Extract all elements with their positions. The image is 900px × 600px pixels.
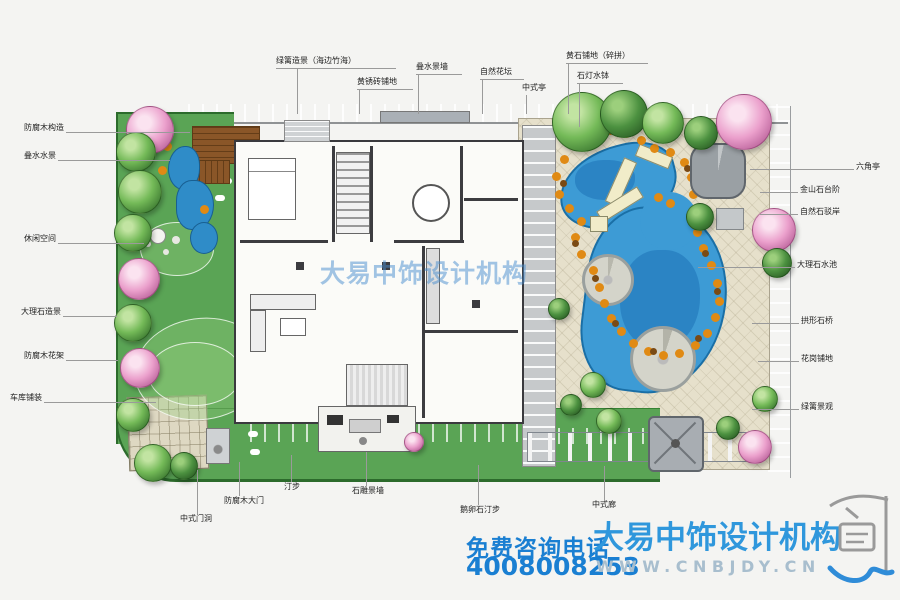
label-top-1: 黄锈砖铺地	[357, 77, 397, 87]
dayi-seal-logo	[824, 486, 898, 594]
leader-line	[752, 323, 799, 324]
label-right-6: 绿篱景观	[801, 402, 833, 412]
leader-line	[239, 462, 240, 496]
tree	[114, 304, 152, 342]
leader-line	[577, 83, 623, 84]
leader-line	[566, 63, 648, 64]
label-right-4: 拱形石桥	[801, 316, 833, 326]
label-left-4: 防腐木花架	[24, 351, 64, 361]
leader-line	[66, 360, 118, 361]
label-left-1: 叠水水景	[24, 151, 56, 161]
entry-steps	[284, 120, 330, 142]
footer-brand-name: 大易中饰设计机构	[593, 512, 841, 557]
hexagonal-pavilion	[690, 143, 746, 199]
leader-line	[480, 79, 524, 80]
label-top-3: 自然花坛	[480, 67, 512, 77]
bush	[686, 203, 714, 231]
rug	[346, 364, 408, 406]
coffee-table	[280, 318, 306, 336]
right-road	[768, 106, 791, 478]
bed	[248, 158, 296, 220]
leader-line	[66, 132, 190, 133]
sofa	[250, 310, 266, 352]
tree	[118, 170, 162, 214]
leader-line	[750, 169, 854, 170]
leader-line	[416, 74, 462, 75]
bush	[548, 298, 570, 320]
label-bottom-5: 中式廊	[592, 500, 616, 510]
garden-gate	[206, 428, 230, 464]
leader-line	[579, 83, 580, 127]
bridge-platform	[590, 216, 608, 232]
circular-patio	[582, 254, 634, 306]
label-top-4: 中式亭	[522, 83, 546, 93]
label-top-5: 黄石铺地（碎拼）	[566, 51, 630, 61]
label-top-0: 绿篱造景（海边竹海）	[276, 56, 356, 66]
leader-line	[359, 89, 360, 114]
label-top-6: 石灯水钵	[577, 71, 609, 81]
label-left-2: 休闲空间	[24, 234, 56, 244]
label-left-0: 防腐木构造	[24, 123, 64, 133]
corridor-gazebo	[648, 416, 704, 472]
garden-table	[150, 228, 166, 244]
label-bottom-0: 中式门洞	[180, 514, 212, 524]
center-watermark: 大易中饰设计机构	[320, 254, 528, 290]
bush	[716, 416, 740, 440]
label-right-0: 六角亭	[856, 162, 880, 172]
leader-line	[758, 361, 799, 362]
label-bottom-4: 鹅卵石汀步	[460, 505, 500, 515]
tree	[116, 398, 150, 432]
pink-tree	[118, 258, 160, 300]
site-plan-screenshot: 绿篱造景（海边竹海） 黄锈砖铺地 叠水景墙 自然花坛 中式亭 黄石铺地（碎拼） …	[0, 0, 900, 600]
leader-line	[44, 402, 156, 403]
label-right-5: 花岗铺地	[801, 354, 833, 364]
leader-line	[698, 267, 795, 268]
label-right-2: 自然石驳岸	[800, 207, 840, 217]
leader-line	[197, 470, 198, 514]
leader-line	[366, 452, 367, 486]
label-bottom-3: 石雕景墙	[352, 486, 384, 496]
circular-patio	[630, 326, 696, 392]
footer-website: WWW.CNBJDY.CN	[596, 557, 821, 576]
tree	[642, 102, 684, 144]
tree	[600, 90, 648, 138]
leader-line	[752, 409, 799, 410]
bush	[596, 408, 622, 434]
leader-line	[478, 465, 479, 505]
tree	[134, 444, 172, 482]
leader-line	[291, 455, 292, 482]
bush	[762, 248, 792, 278]
stairs	[336, 152, 370, 234]
leader-line	[526, 95, 527, 114]
label-left-3: 大理石造景	[21, 307, 61, 317]
tree	[114, 214, 152, 252]
outdoor-kitchen	[318, 406, 416, 452]
label-bottom-1: 防腐木大门	[224, 496, 264, 506]
cascade-water-feature	[190, 222, 218, 254]
bush	[560, 394, 582, 416]
side-walkway	[522, 125, 556, 467]
leader-line	[58, 160, 170, 161]
label-left-5: 车库铺装	[10, 393, 42, 403]
leader-line	[482, 79, 483, 114]
pink-tree	[738, 430, 772, 464]
water-feature-wall	[380, 111, 470, 123]
pink-bush	[404, 432, 424, 452]
lawn-mound	[148, 342, 242, 406]
leader-line	[604, 466, 605, 500]
leader-line	[276, 68, 396, 69]
bush	[580, 372, 606, 398]
round-dining-table	[412, 184, 450, 222]
leader-line	[58, 243, 144, 244]
leader-line	[63, 316, 117, 317]
stone-table	[716, 208, 744, 230]
leader-line	[357, 89, 413, 90]
pink-tree	[716, 94, 772, 150]
leader-line	[418, 74, 419, 114]
label-right-1: 金山石台阶	[800, 185, 840, 195]
leader-line	[297, 68, 298, 114]
tree	[170, 452, 198, 480]
label-right-3: 大理石水池	[797, 260, 837, 270]
blue-swoosh	[830, 568, 892, 581]
tree	[116, 132, 156, 172]
sofa	[250, 294, 316, 310]
label-bottom-2: 汀步	[284, 482, 300, 492]
pink-tree	[120, 348, 160, 388]
label-top-2: 叠水景墙	[416, 62, 448, 72]
tree	[684, 116, 718, 150]
leader-line	[568, 63, 569, 114]
leader-line	[760, 192, 798, 193]
leader-line	[760, 214, 798, 215]
